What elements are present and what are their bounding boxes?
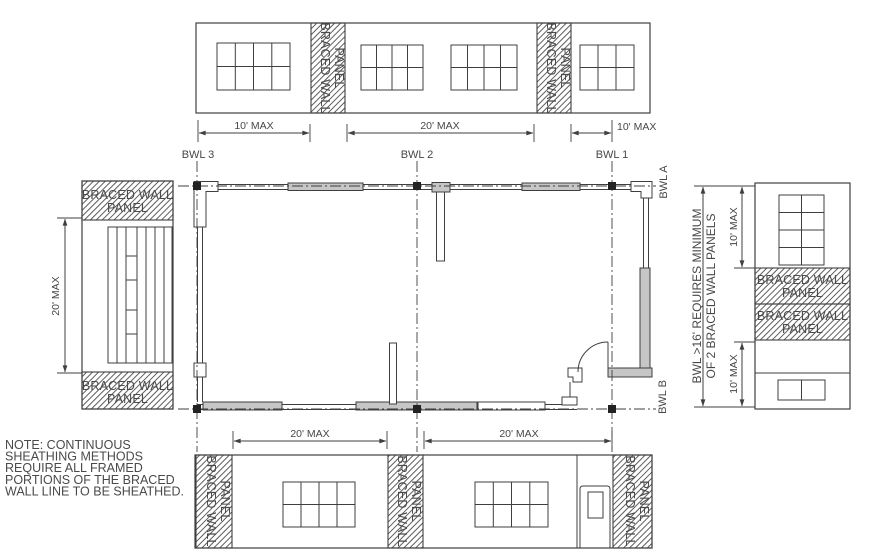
bottom-dimensions: 20' MAX 20' MAX	[233, 428, 612, 449]
bwl1-label: BWL 1	[596, 149, 629, 161]
right-wall-elevation: BRACED WALL PANEL BRACED WALL PANEL 10' …	[690, 183, 850, 409]
braced-panel-label: BRACED WALL	[318, 22, 332, 113]
braced-panel-label: PANEL	[409, 480, 423, 521]
braced-segment	[640, 268, 650, 372]
window	[451, 45, 517, 90]
note-line: WALL LINE TO BE SHEATHED.	[5, 484, 184, 498]
dimension-text: 20' MAX	[50, 276, 62, 315]
dimension-text: 20' MAX	[290, 428, 329, 440]
corner-wall	[631, 182, 652, 199]
right-dimensions: 10' MAX 10' MAX BWL >16' REQUIRES MINIMU…	[690, 186, 755, 407]
requirement-text: OF 2 BRACED WALL PANELS	[704, 214, 718, 379]
interior-wall	[390, 343, 397, 404]
dimension-text: 10' MAX	[728, 354, 740, 393]
braced-segment	[608, 368, 652, 377]
window	[283, 482, 355, 527]
window	[217, 43, 290, 90]
braced-panel-label: PANEL	[218, 480, 232, 521]
braced-panel-label: BRACED WALL	[623, 455, 637, 546]
braced-panel-label: BRACED WALL	[395, 455, 409, 546]
door-jamb	[568, 368, 582, 382]
door-window	[588, 492, 603, 518]
braced-segment	[288, 183, 363, 191]
braced-segment	[432, 183, 450, 193]
top-dimensions: 10' MAX 20' MAX 10' MAX BWL 3 BWL 2 BWL …	[182, 120, 657, 161]
window	[580, 45, 634, 90]
braced-panel-label: PANEL	[782, 286, 823, 300]
floor-plan	[194, 182, 652, 411]
braced-panel-label: PANEL	[782, 322, 823, 336]
corner-wall	[194, 363, 206, 377]
dimension-text: 20' MAX	[420, 120, 459, 132]
braced-panel-label: PANEL	[107, 392, 148, 406]
braced-panel-label: PANEL	[637, 480, 651, 521]
window	[779, 195, 824, 265]
bwl-b-label: BWL B	[657, 380, 669, 414]
grid-node	[413, 405, 421, 413]
window	[361, 45, 423, 90]
braced-panel-label: PANEL	[332, 47, 346, 88]
braced-panel-label: BRACED WALL	[757, 273, 848, 287]
left-wall-elevation: BRACED WALL PANEL BRACED WALL PANEL 20' …	[50, 181, 173, 409]
wall-step	[562, 397, 577, 405]
grid-node	[193, 182, 201, 190]
grid-node	[608, 182, 616, 190]
bwl3-label: BWL 3	[182, 149, 215, 161]
braced-panel-label: BRACED WALL	[544, 22, 558, 113]
left-dimension: 20' MAX	[50, 218, 82, 373]
braced-panel-label: BRACED WALL	[757, 309, 848, 323]
braced-panel-label: BRACED WALL	[82, 379, 173, 393]
bottom-wall-elevation: BRACED WALL PANEL BRACED WALL PANEL BRAC…	[195, 455, 652, 548]
window	[475, 482, 548, 527]
bwl-a-label: BWL A	[658, 165, 670, 199]
braced-panel-label: BRACED WALL	[204, 455, 218, 546]
braced-wall-line-diagram: BRACED WALL PANEL BRACED WALL PANEL 10' …	[0, 0, 871, 560]
braced-panel-label: PANEL	[558, 47, 572, 88]
diagram-canvas: BRACED WALL PANEL BRACED WALL PANEL 10' …	[0, 0, 871, 560]
braced-panel-label: BRACED WALL	[82, 188, 173, 202]
dimension-text: 20' MAX	[499, 428, 538, 440]
requirement-text: BWL >16' REQUIRES MINIMUM	[690, 209, 704, 384]
garage-door	[108, 227, 172, 363]
right-wall	[644, 198, 649, 268]
dimension-text: 10' MAX	[728, 207, 740, 246]
dimension-text: 10' MAX	[234, 120, 273, 132]
grid-node	[608, 405, 616, 413]
braced-panel-label: PANEL	[107, 201, 148, 215]
bwl2-label: BWL 2	[401, 149, 434, 161]
window	[778, 380, 825, 400]
top-wall-elevation: BRACED WALL PANEL BRACED WALL PANEL	[196, 22, 650, 113]
interior-wall	[437, 192, 445, 261]
dimension-text: 10' MAX	[617, 121, 656, 133]
note-text: NOTE: CONTINUOUS SHEATHING METHODS REQUI…	[5, 438, 184, 498]
braced-segment	[522, 183, 580, 191]
grid-node	[413, 182, 421, 190]
grid-node	[193, 405, 201, 413]
entry-door	[580, 486, 610, 548]
